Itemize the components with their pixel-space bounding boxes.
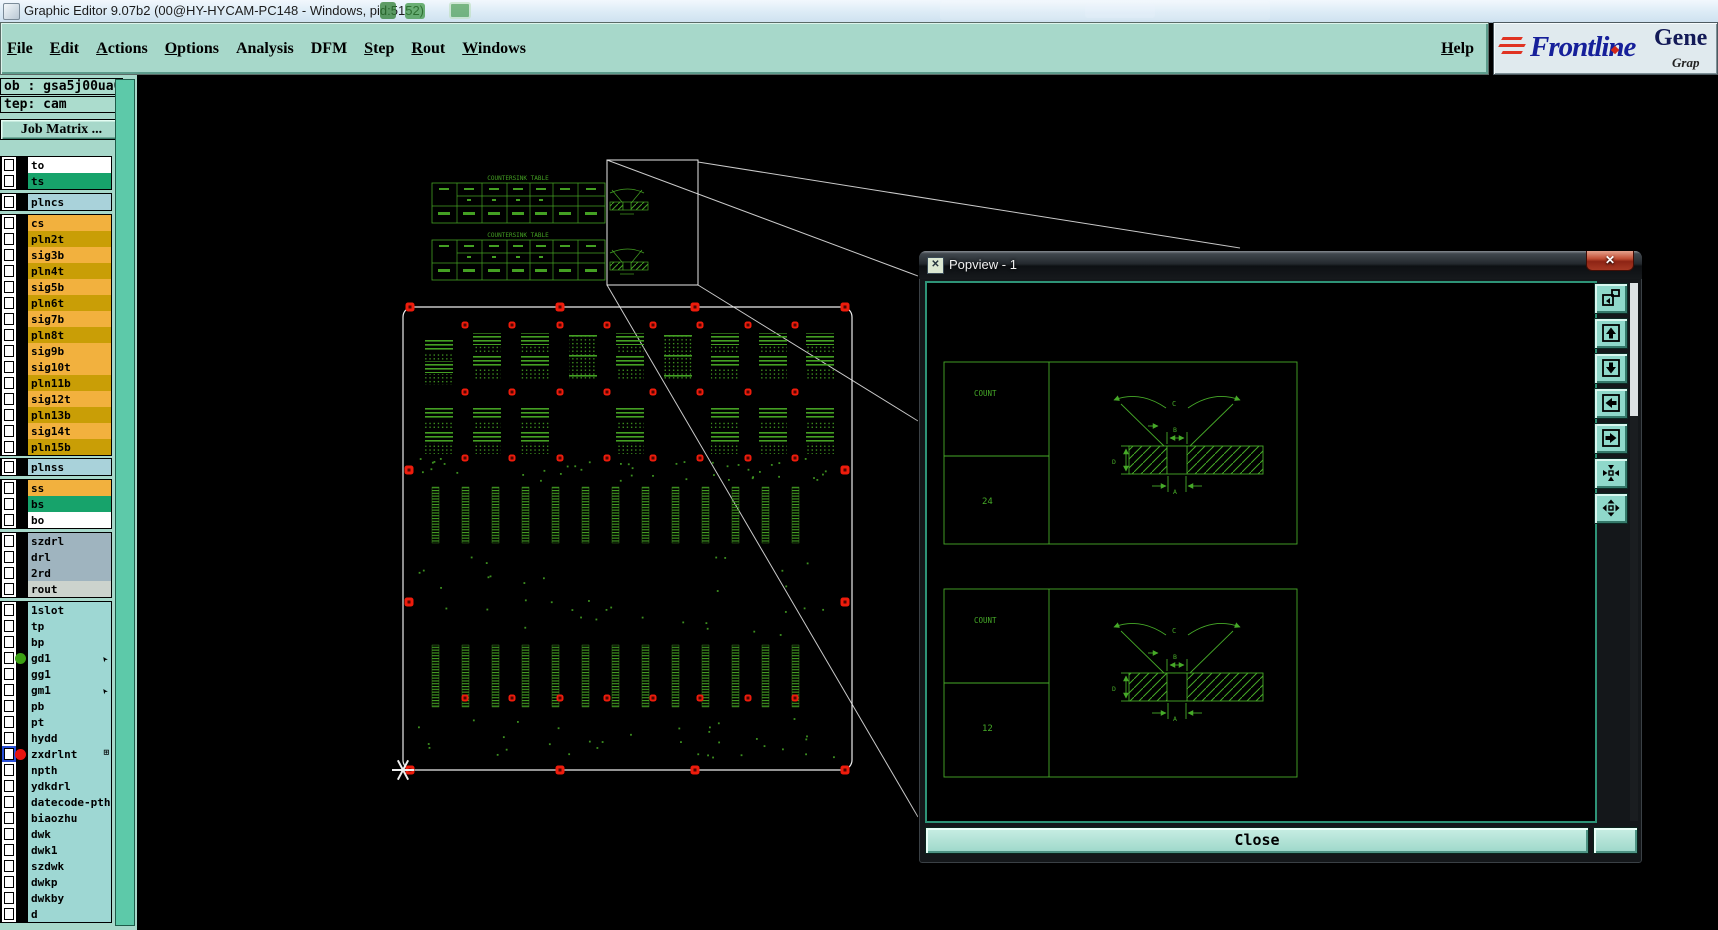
layer-checkbox-gm1[interactable] [4, 684, 14, 696]
job-field: ob : gsa5j00ua0 [0, 78, 123, 95]
layer-checkbox-rout[interactable] [4, 583, 14, 595]
layer-checkbox-cell [1, 327, 28, 343]
application-window: Graphic Editor 9.07b2 (00@HY-HYCAM-PC148… [0, 0, 1718, 930]
layer-checkbox-zxdrlnt[interactable] [4, 748, 14, 760]
layer-checkbox-cell [1, 391, 28, 407]
layer-checkbox-cell [1, 247, 28, 263]
svg-text:12: 12 [982, 724, 993, 734]
layer-name-bs[interactable]: bs [28, 496, 111, 512]
green-status-dot [15, 653, 26, 664]
layer-row-datecode-pth[interactable]: datecode-pth [1, 794, 111, 810]
layer-checkbox-cell [1, 794, 28, 810]
brand-speedline [1501, 37, 1523, 40]
layer-checkbox-cell [1, 480, 28, 496]
layer-checkbox-to[interactable] [4, 159, 14, 171]
layer-group: plnss [0, 458, 112, 476]
popout-button[interactable] [1594, 283, 1628, 314]
fit-out-icon [1602, 499, 1620, 517]
layer-name-pln8t[interactable]: pln8t [28, 327, 111, 343]
layer-checkbox-cell [1, 194, 28, 210]
red-status-dot [15, 749, 26, 760]
layer-checkbox-gg1[interactable] [4, 668, 14, 680]
layer-row-tp[interactable]: tp [1, 618, 111, 634]
layer-name-1slot[interactable]: 1slot [28, 602, 111, 618]
layer-checkbox-drl[interactable] [4, 551, 14, 563]
layer-checkbox-cell [1, 512, 28, 528]
layer-checkbox-cs[interactable] [4, 217, 14, 229]
layer-checkbox-datecode-pth[interactable] [4, 796, 14, 808]
popview-drawing: COUNT24CBDACOUNT12CBDA [927, 283, 1595, 817]
layer-checkbox-cell [1, 778, 28, 794]
layer-row-dwkp[interactable]: dwkp [1, 874, 111, 890]
layer-name-sig10t[interactable]: sig10t [28, 359, 111, 375]
layer-checkbox-pln15b[interactable] [4, 441, 14, 453]
menu-analysis[interactable]: Analysis [236, 40, 294, 58]
pan-left-button[interactable] [1594, 388, 1628, 419]
svg-text:B: B [1173, 653, 1177, 661]
layer-row-sig7b[interactable]: sig7b [1, 311, 111, 327]
layer-checkbox-cell [1, 762, 28, 778]
layer-group: plncs [0, 193, 112, 211]
menubar: FileEditActionsOptionsAnalysisDFMStepRou… [0, 22, 1489, 75]
layer-checkbox-bo[interactable] [4, 514, 14, 526]
layer-checkbox-hydd[interactable] [4, 732, 14, 744]
layer-name-pln11b[interactable]: pln11b [28, 375, 111, 391]
layer-checkbox-cell [1, 359, 28, 375]
svg-text:COUNTERSINK TABLE: COUNTERSINK TABLE [487, 232, 549, 239]
layer-checkbox-pln11b[interactable] [4, 377, 14, 389]
job-label: ob : gsa5j00ua0 [4, 79, 121, 94]
brand-logo: Frontline [1530, 31, 1635, 64]
layer-name-zxdrlnt[interactable]: zxdrlnt⊞ [28, 746, 111, 762]
layer-name-pln2t[interactable]: pln2t [28, 231, 111, 247]
layer-row-bp[interactable]: bp [1, 634, 111, 650]
countersink-panel: COUNT12CBDA [944, 589, 1297, 777]
layer-checkbox-cell [1, 263, 28, 279]
layer-name-sig12t[interactable]: sig12t [28, 391, 111, 407]
layer-checkbox-sig14t[interactable] [4, 425, 14, 437]
layer-checkbox-cell [1, 375, 28, 391]
popview-titlebar[interactable]: ✕ Popview - 1 ✕ [919, 251, 1642, 279]
layer-row-pln4t[interactable]: pln4t [1, 263, 111, 279]
layer-checkbox-cell [1, 533, 28, 549]
titlebar-glass-reflection [1085, 3, 1155, 18]
taskbar-ghost-icon [405, 3, 425, 19]
layer-checkbox-cell [1, 874, 28, 890]
svg-text:COUNT: COUNT [974, 616, 997, 625]
layer-checkbox-dwk[interactable] [4, 828, 14, 840]
menu-edit[interactable]: Edit [50, 40, 79, 58]
brand-product: Gene [1654, 25, 1707, 52]
layer-name-sig14t[interactable]: sig14t [28, 423, 111, 439]
layer-name-sig7b[interactable]: sig7b [28, 311, 111, 327]
pan-up-icon [1602, 324, 1620, 342]
svg-text:A: A [1173, 488, 1177, 496]
brand-panel: Frontline Gene Grap [1493, 22, 1718, 75]
pan-up-button[interactable] [1594, 318, 1628, 349]
layer-row-ss[interactable]: ss [1, 480, 111, 496]
layer-name-bo[interactable]: bo [28, 512, 111, 528]
layer-row-d[interactable]: d [1, 906, 111, 922]
menu-step[interactable]: Step [364, 40, 394, 58]
layer-checkbox-biaozhu[interactable] [4, 812, 14, 824]
svg-text:D: D [1112, 458, 1116, 466]
menu-file[interactable]: File [7, 40, 33, 58]
layer-row-ts[interactable]: ts [1, 173, 111, 189]
brand-speedline [1501, 51, 1523, 54]
menu-rout[interactable]: Rout [411, 40, 445, 58]
layer-name-gg1[interactable]: gg1 [28, 666, 111, 682]
layer-checkbox-pb[interactable] [4, 700, 14, 712]
step-label: tep: cam [4, 97, 67, 112]
popview-corner-button[interactable] [1593, 827, 1638, 854]
layer-row-pln8t[interactable]: pln8t [1, 327, 111, 343]
popview-close-x-button[interactable]: ✕ [1586, 251, 1634, 271]
layer-row-pln15b[interactable]: pln15b [1, 439, 111, 455]
layer-checkbox-gd1[interactable] [4, 652, 14, 664]
svg-text:COUNTERSINK TABLE: COUNTERSINK TABLE [487, 175, 549, 182]
taskbar-ghost-icon [380, 2, 396, 19]
popview-scrollbar-thumb[interactable] [1630, 283, 1638, 416]
job-matrix-button[interactable]: Job Matrix ... [0, 119, 123, 140]
layer-checkbox-cell [1, 682, 28, 698]
menu-actions[interactable]: Actions [96, 40, 148, 58]
menu-help[interactable]: Help [1441, 40, 1474, 58]
popout-icon [1602, 289, 1620, 307]
layer-name-pln15b[interactable]: pln15b [28, 439, 111, 455]
layer-checkbox-cell [1, 343, 28, 359]
layer-checkbox-ts[interactable] [4, 175, 14, 187]
layer-checkbox-cell [1, 459, 28, 475]
layer-arrow-icon: ➤ [100, 685, 111, 696]
layer-checkbox-cell [1, 698, 28, 714]
layer-checkbox-cell [1, 565, 28, 581]
layer-row-dwk1[interactable]: dwk1 [1, 842, 111, 858]
layer-row-rout[interactable]: rout [1, 581, 111, 597]
brand-speedline [1498, 44, 1526, 47]
layer-name-tp[interactable]: tp [28, 618, 111, 634]
svg-text:C: C [1172, 400, 1176, 408]
layer-row-to[interactable]: to [1, 157, 111, 173]
layer-checkbox-cell [1, 666, 28, 682]
popview-window: ✕ Popview - 1 ✕ COUNT24CBDACOUNT12CBDA C… [918, 250, 1643, 864]
layer-name-dwk[interactable]: dwk [28, 826, 111, 842]
layer-checkbox-sig5b[interactable] [4, 281, 14, 293]
layer-checkbox-pln2t[interactable] [4, 233, 14, 245]
layer-checkbox-cell [1, 906, 28, 922]
fit-in-icon [1602, 464, 1620, 482]
layer-name-ss[interactable]: ss [28, 480, 111, 496]
layer-name-plncs[interactable]: plncs [28, 194, 111, 210]
popview-content[interactable]: COUNT24CBDACOUNT12CBDA [925, 281, 1597, 823]
menu-windows[interactable]: Windows [462, 40, 526, 58]
layer-row-pln2t[interactable]: pln2t [1, 231, 111, 247]
layer-name-biaozhu[interactable]: biaozhu [28, 810, 111, 826]
layer-checkbox-cell [1, 746, 28, 762]
layer-name-datecode-pth[interactable]: datecode-pth [28, 794, 111, 810]
layer-checkbox-pln8t[interactable] [4, 329, 14, 341]
layer-group: szdrldrl2rdrout [0, 532, 112, 598]
layer-row-cs[interactable]: cs [1, 215, 111, 231]
layer-row-pt[interactable]: pt [1, 714, 111, 730]
layer-row-sig5b[interactable]: sig5b [1, 279, 111, 295]
layer-group: tots [0, 156, 112, 190]
layer-checkbox-ydkdrl[interactable] [4, 780, 14, 792]
layer-name-sig5b[interactable]: sig5b [28, 279, 111, 295]
layer-row-gm1[interactable]: gm1➤ [1, 682, 111, 698]
pan-left-icon [1602, 394, 1620, 412]
layer-checkbox-cell [1, 295, 28, 311]
layer-name-bp[interactable]: bp [28, 634, 111, 650]
layer-group: 1slottpbpgd1➤gg1gm1➤pbpthyddzxdrlnt⊞npth… [0, 601, 112, 923]
layer-name-d[interactable]: d [28, 906, 111, 922]
layer-row-pln11b[interactable]: pln11b [1, 375, 111, 391]
layer-checkbox-cell [1, 423, 28, 439]
layer-name-plnss[interactable]: plnss [28, 459, 111, 475]
layer-name-cs[interactable]: cs [28, 215, 111, 231]
layer-checkbox-cell [1, 549, 28, 565]
layer-row-sig14t[interactable]: sig14t [1, 423, 111, 439]
layer-checkbox-plnss[interactable] [4, 461, 14, 473]
layer-checkbox-cell [1, 730, 28, 746]
layer-grid-icon: ⊞ [104, 748, 109, 758]
layer-name-ydkdrl[interactable]: ydkdrl [28, 778, 111, 794]
layer-checkbox-dwk1[interactable] [4, 844, 14, 856]
layer-checkbox-cell [1, 634, 28, 650]
layer-name-2rd[interactable]: 2rd [28, 565, 111, 581]
layer-row-2rd[interactable]: 2rd [1, 565, 111, 581]
layer-name-pb[interactable]: pb [28, 698, 111, 714]
layer-checkbox-d[interactable] [4, 908, 14, 920]
layer-group: cspln2tsig3bpln4tsig5bpln6tsig7bpln8tsig… [0, 214, 112, 456]
layer-row-sig10t[interactable]: sig10t [1, 359, 111, 375]
layer-checkbox-cell [1, 279, 28, 295]
layer-name-szdwk[interactable]: szdwk [28, 858, 111, 874]
layer-checkbox-pln6t[interactable] [4, 297, 14, 309]
layer-name-dwkby[interactable]: dwkby [28, 890, 111, 906]
layer-row-sig12t[interactable]: sig12t [1, 391, 111, 407]
pan-right-icon [1602, 429, 1620, 447]
layer-name-rout[interactable]: rout [28, 581, 111, 597]
window-titlebar[interactable]: Graphic Editor 9.07b2 (00@HY-HYCAM-PC148… [0, 0, 1718, 23]
layer-row-drl[interactable]: drl [1, 549, 111, 565]
layer-row-zxdrlnt[interactable]: zxdrlnt⊞ [1, 746, 111, 762]
layer-checkbox-cell [1, 231, 28, 247]
layer-name-szdrl[interactable]: szdrl [28, 533, 111, 549]
layer-checkbox-cell [1, 581, 28, 597]
layer-checkbox-cell [1, 215, 28, 231]
layer-checkbox-cell [1, 602, 28, 618]
layer-checkbox-sig7b[interactable] [4, 313, 14, 325]
layer-row-gd1[interactable]: gd1➤ [1, 650, 111, 666]
layer-row-npth[interactable]: npth [1, 762, 111, 778]
svg-text:COUNT: COUNT [974, 389, 997, 398]
layer-checkbox-cell [1, 618, 28, 634]
layer-row-hydd[interactable]: hydd [1, 730, 111, 746]
layer-name-drl[interactable]: drl [28, 549, 111, 565]
layer-name-pln4t[interactable]: pln4t [28, 263, 111, 279]
layer-checkbox-2rd[interactable] [4, 567, 14, 579]
layer-arrow-icon: ➤ [100, 653, 111, 664]
layer-checkbox-cell [1, 714, 28, 730]
sidebar-scrollbar[interactable] [115, 79, 135, 926]
pan-down-button[interactable] [1594, 353, 1628, 384]
layer-checkbox-npth[interactable] [4, 764, 14, 776]
layer-checkbox-szdrl[interactable] [4, 535, 14, 547]
layer-checkbox-pln4t[interactable] [4, 265, 14, 277]
layer-checkbox-cell [1, 650, 28, 666]
layer-checkbox-dwkp[interactable] [4, 876, 14, 888]
step-field: tep: cam [0, 96, 123, 113]
popview-window-icon: ✕ [927, 257, 944, 274]
layer-row-pb[interactable]: pb [1, 698, 111, 714]
layer-checkbox-pln13b[interactable] [4, 409, 14, 421]
layer-checkbox-pt[interactable] [4, 716, 14, 728]
layer-row-plncs[interactable]: plncs [1, 194, 111, 210]
layer-row-pln6t[interactable]: pln6t [1, 295, 111, 311]
menu-items: FileEditActionsOptionsAnalysisDFMStepRou… [7, 23, 543, 74]
layer-checkbox-sig12t[interactable] [4, 393, 14, 405]
layer-row-szdwk[interactable]: szdwk [1, 858, 111, 874]
layer-name-dwk1[interactable]: dwk1 [28, 842, 111, 858]
layer-checkbox-sig3b[interactable] [4, 249, 14, 261]
layer-row-pln13b[interactable]: pln13b [1, 407, 111, 423]
layer-checkbox-cell [1, 439, 28, 455]
taskbar-ghost-icon [449, 2, 471, 19]
layer-name-sig3b[interactable]: sig3b [28, 247, 111, 263]
layer-row-bo[interactable]: bo [1, 512, 111, 528]
layer-row-sig9b[interactable]: sig9b [1, 343, 111, 359]
layer-name-sig9b[interactable]: sig9b [28, 343, 111, 359]
layer-checkbox-szdwk[interactable] [4, 860, 14, 872]
layer-checkbox-ss[interactable] [4, 482, 14, 494]
svg-text:C: C [1172, 627, 1176, 635]
countersink-panel: COUNT24CBDA [944, 362, 1297, 544]
svg-text:A: A [1173, 715, 1177, 723]
layer-row-dwkby[interactable]: dwkby [1, 890, 111, 906]
svg-text:D: D [1112, 685, 1116, 693]
layer-name-dwkp[interactable]: dwkp [28, 874, 111, 890]
layer-name-pt[interactable]: pt [28, 714, 111, 730]
layer-row-szdrl[interactable]: szdrl [1, 533, 111, 549]
layer-name-hydd[interactable]: hydd [28, 730, 111, 746]
layer-name-pln13b[interactable]: pln13b [28, 407, 111, 423]
layer-checkbox-cell [1, 826, 28, 842]
layer-checkbox-dwkby[interactable] [4, 892, 14, 904]
layer-checkbox-tp[interactable] [4, 620, 14, 632]
app-icon [3, 3, 20, 20]
window-title: Graphic Editor 9.07b2 (00@HY-HYCAM-PC148… [24, 3, 424, 18]
layer-checkbox-bs[interactable] [4, 498, 14, 510]
layer-group: ssbsbo [0, 479, 112, 529]
layer-row-1slot[interactable]: 1slot [1, 602, 111, 618]
layer-row-plnss[interactable]: plnss [1, 459, 111, 475]
pan-down-icon [1602, 359, 1620, 377]
popview-title: Popview - 1 [949, 257, 1017, 272]
layer-row-bs[interactable]: bs [1, 496, 111, 512]
layer-row-biaozhu[interactable]: biaozhu [1, 810, 111, 826]
layer-name-gm1[interactable]: gm1➤ [28, 682, 111, 698]
layer-checkbox-cell [1, 858, 28, 874]
fit-in-button[interactable] [1594, 458, 1628, 489]
layer-checkbox-sig9b[interactable] [4, 345, 14, 357]
layer-row-gg1[interactable]: gg1 [1, 666, 111, 682]
layer-name-gd1[interactable]: gd1➤ [28, 650, 111, 666]
layer-name-pln6t[interactable]: pln6t [28, 295, 111, 311]
layer-checkbox-cell [1, 496, 28, 512]
layer-checkbox-cell [1, 842, 28, 858]
brand-tagline: Grap [1672, 55, 1699, 71]
menu-dfm[interactable]: DFM [311, 40, 347, 58]
layer-checkbox-sig10t[interactable] [4, 361, 14, 373]
svg-text:24: 24 [982, 497, 993, 507]
layer-name-npth[interactable]: npth [28, 762, 111, 778]
svg-text:B: B [1173, 426, 1177, 434]
layer-checkbox-plncs[interactable] [4, 196, 14, 208]
layer-checkbox-1slot[interactable] [4, 604, 14, 616]
layer-checkbox-cell [1, 407, 28, 423]
layer-checkbox-cell [1, 173, 28, 189]
layer-checkbox-cell [1, 810, 28, 826]
layer-checkbox-cell [1, 157, 28, 173]
pan-right-button[interactable] [1594, 423, 1628, 454]
sidebar: ob : gsa5j00ua0 tep: cam Job Matrix ... … [0, 75, 137, 930]
popview-close-button[interactable]: Close [925, 827, 1589, 854]
layer-name-ts[interactable]: ts [28, 173, 111, 189]
layer-checkbox-cell [1, 311, 28, 327]
fit-out-button[interactable] [1594, 493, 1628, 524]
layer-checkbox-bp[interactable] [4, 636, 14, 648]
popview-scrollbar[interactable] [1630, 283, 1638, 821]
layer-name-to[interactable]: to [28, 157, 111, 173]
layer-checkbox-cell [1, 890, 28, 906]
layer-row-sig3b[interactable]: sig3b [1, 247, 111, 263]
menu-options[interactable]: Options [165, 40, 219, 58]
layer-row-dwk[interactable]: dwk [1, 826, 111, 842]
layer-row-ydkdrl[interactable]: ydkdrl [1, 778, 111, 794]
